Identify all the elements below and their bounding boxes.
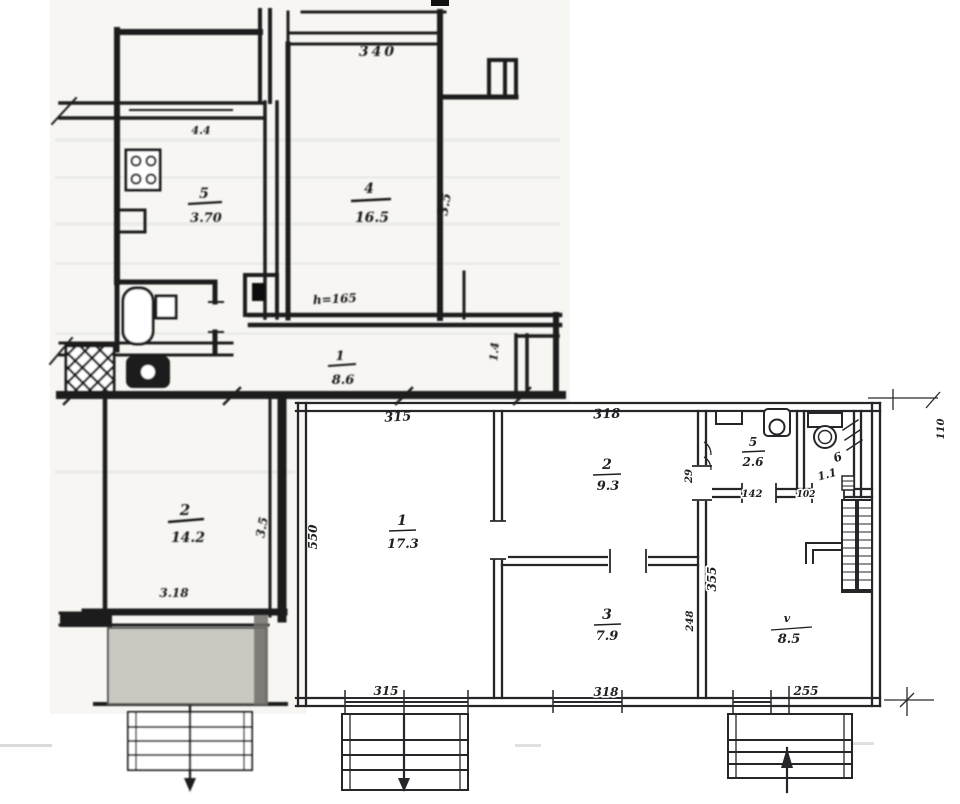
bathroom-dim-bottom: 142: [742, 489, 763, 500]
room1-dim-top: 315: [384, 409, 412, 425]
wc-number: 6: [831, 449, 844, 465]
old-living-area: 16.5: [355, 210, 389, 226]
vent-shaft: [842, 500, 872, 592]
scan-speck: [431, 0, 449, 6]
room1-dim-left: 550: [306, 524, 320, 550]
room2-number: 2: [601, 457, 612, 473]
room1-area: 17.3: [387, 537, 419, 552]
room3-side-dim: 248: [685, 611, 696, 633]
room2-area: 9.3: [597, 479, 620, 494]
wc-dim-right: 110: [936, 419, 947, 440]
old-living-number: 4: [364, 181, 374, 197]
old-kitchen-number: 5: [199, 186, 209, 202]
balcony-hatch: [66, 346, 114, 392]
room1-number: 1: [397, 513, 407, 529]
old-kitchen-area: 3.70: [190, 211, 222, 226]
kitchen-number: v: [784, 612, 791, 625]
dimension-lines: [868, 389, 940, 716]
room2-side-dim: 29: [684, 469, 695, 484]
stove-icon: [126, 150, 160, 190]
wc-area: 1.1: [816, 466, 838, 484]
washbasin-icon: [716, 409, 790, 436]
stairs-left: [128, 706, 252, 792]
room2-dim-top: 318: [593, 407, 621, 423]
stairs-right: [728, 714, 852, 792]
window-room1: [345, 690, 468, 713]
room3-dim-bottom: 318: [593, 685, 619, 699]
old-hall-number: 1: [335, 349, 344, 364]
bathroom-number: 5: [749, 435, 757, 449]
old-room-number: 2: [179, 501, 190, 519]
old-dim-window: 4.4: [191, 124, 210, 137]
new-plan: [296, 389, 940, 792]
old-dim-top: 340: [359, 44, 397, 60]
room1-dim-bottom: 315: [373, 684, 398, 698]
old-height-note: h=165: [313, 291, 358, 307]
new-plan-walls: [296, 403, 880, 706]
old-dim-bottom: 3.18: [159, 586, 189, 600]
room3-area: 7.9: [596, 629, 619, 644]
door-openings: [488, 442, 844, 573]
wc-dim-note: 102: [797, 490, 816, 500]
floorplan-canvas: 340 4.4 5 3.70 4 16.5 3.5 h=165 1 8.6 1.…: [0, 0, 960, 804]
floorplan-scan-page: 340 4.4 5 3.70 4 16.5 3.5 h=165 1 8.6 1.…: [0, 0, 960, 804]
old-hall-area: 8.6: [332, 373, 355, 388]
bathroom-area: 2.6: [742, 455, 765, 469]
stairs-middle: [342, 714, 468, 792]
kitchen-dim-bottom: 255: [792, 684, 818, 698]
room3-number: 3: [602, 607, 612, 623]
hall-dim: 355: [705, 566, 719, 591]
old-room-area: 14.2: [171, 530, 205, 546]
old-hall-side-dim: 1.4: [487, 342, 502, 362]
window-kitchen: [733, 686, 789, 713]
windows: [345, 686, 789, 713]
toilet-icon: [126, 356, 170, 388]
kitchen-area: 8.5: [778, 632, 801, 647]
